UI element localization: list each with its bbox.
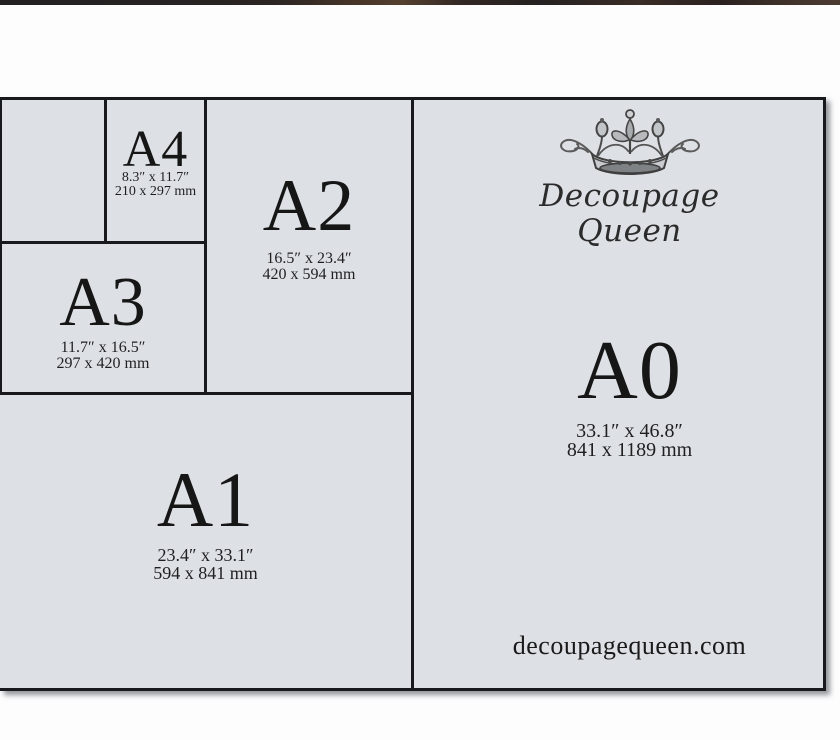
size-inches-a1: 23.4″ x 33.1″: [0, 546, 411, 564]
paper-size-chart: A4 8.3″ x 11.7″ 210 x 297 mm A2 16.5″ x …: [0, 97, 826, 691]
divider-a3-bottom: [0, 392, 414, 395]
size-label-a4: A4: [107, 124, 204, 176]
size-inches-a4: 8.3″ x 11.7″: [107, 171, 204, 185]
size-mm-a4: 210 x 297 mm: [107, 185, 204, 199]
brand-name-line2: Queen: [425, 214, 834, 248]
chart-left-border: [0, 100, 2, 395]
website-text: decoupagequeen.com: [425, 631, 834, 661]
size-mm-a3: 297 x 420 mm: [2, 356, 204, 372]
size-dims-a4: 8.3″ x 11.7″ 210 x 297 mm: [107, 171, 204, 199]
empty-cell: [2, 100, 104, 241]
size-label-a0: A0: [425, 329, 834, 413]
size-inches-a3: 11.7″ x 16.5″: [2, 340, 204, 356]
size-label-a1: A1: [0, 461, 411, 539]
size-dims-a0: 33.1″ x 46.8″ 841 x 1189 mm: [425, 422, 834, 460]
size-mm-a2: 420 x 594 mm: [207, 267, 411, 283]
size-dims-a1: 23.4″ x 33.1″ 594 x 841 mm: [0, 546, 411, 582]
size-label-a3: A3: [2, 268, 204, 338]
cell-a3: A3 11.7″ x 16.5″ 297 x 420 mm: [2, 244, 204, 392]
size-dims-a2: 16.5″ x 23.4″ 420 x 594 mm: [207, 251, 411, 283]
divider-a4-a2: [204, 100, 207, 395]
divider-empty-a4: [104, 100, 107, 244]
size-mm-a1: 594 x 841 mm: [0, 564, 411, 582]
size-dims-a3: 11.7″ x 16.5″ 297 x 420 mm: [2, 340, 204, 372]
crown-icon: [425, 106, 834, 178]
size-inches-a2: 16.5″ x 23.4″: [207, 251, 411, 267]
cell-a4: A4 8.3″ x 11.7″ 210 x 297 mm: [107, 100, 204, 241]
photo-top-edge: [0, 0, 840, 5]
cell-a0: Decoupage Queen A0 33.1″ x 46.8″ 841 x 1…: [414, 100, 823, 688]
brand-name-line1: Decoupage: [425, 179, 834, 213]
cell-a2: A2 16.5″ x 23.4″ 420 x 594 mm: [207, 100, 411, 392]
size-label-a2: A2: [207, 169, 411, 243]
divider-a4-bottom: [0, 241, 207, 244]
cell-a1: A1 23.4″ x 33.1″ 594 x 841 mm: [0, 395, 411, 688]
size-mm-a0: 841 x 1189 mm: [425, 441, 834, 460]
